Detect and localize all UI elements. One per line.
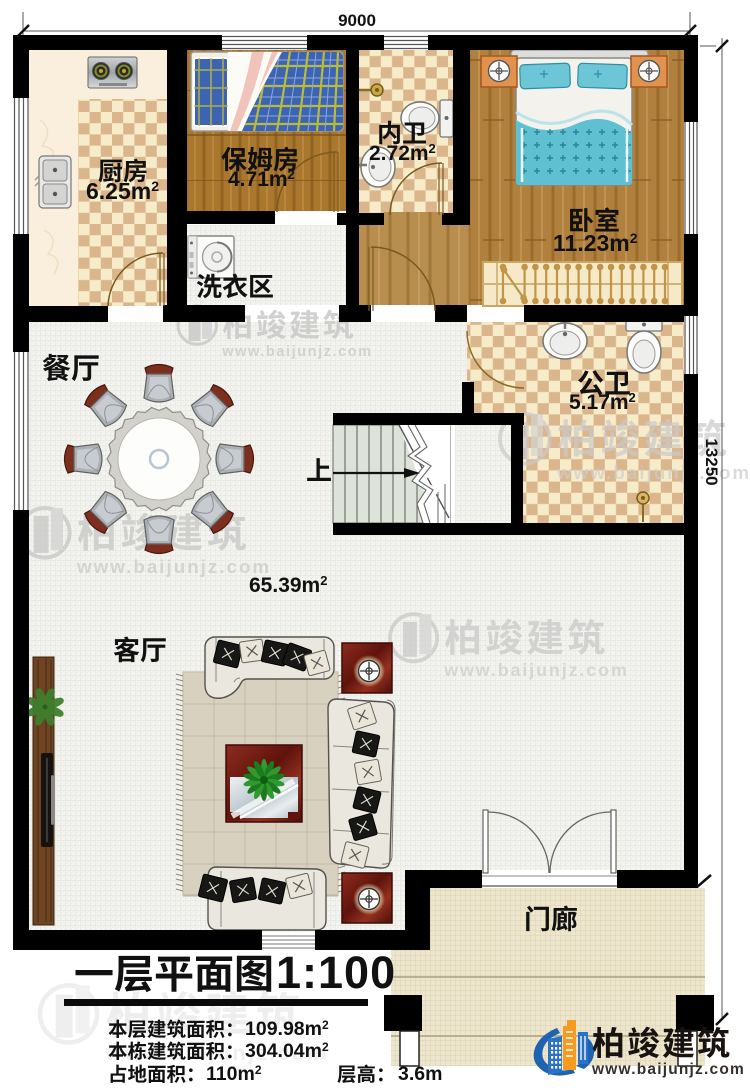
svg-text:2.72m2: 2.72m2 [369,141,436,165]
svg-text:65.39m2: 65.39m2 [249,573,327,597]
svg-text:www.baijunjz.com: www.baijunjz.com [221,344,372,360]
svg-text:11.23m2: 11.23m2 [553,230,638,256]
svg-text:5.17m2: 5.17m2 [569,390,636,414]
svg-text:1:100: 1:100 [276,947,396,998]
svg-text:www.baijunjz.com: www.baijunjz.com [76,556,271,577]
svg-text:9000: 9000 [338,11,376,30]
svg-text:www.baijunjz.com: www.baijunjz.com [443,660,629,680]
svg-text:3.6m: 3.6m [398,1063,442,1085]
svg-text:109.98m2: 109.98m2 [245,1018,329,1040]
svg-text:www.baijunjz.com: www.baijunjz.com [591,1061,745,1078]
svg-text:13250: 13250 [702,438,721,485]
svg-text:110m2: 110m2 [206,1063,262,1085]
svg-text:4.71m2: 4.71m2 [228,167,295,191]
svg-text:6.25m2: 6.25m2 [86,178,159,204]
svg-text:304.04m2: 304.04m2 [245,1040,329,1062]
